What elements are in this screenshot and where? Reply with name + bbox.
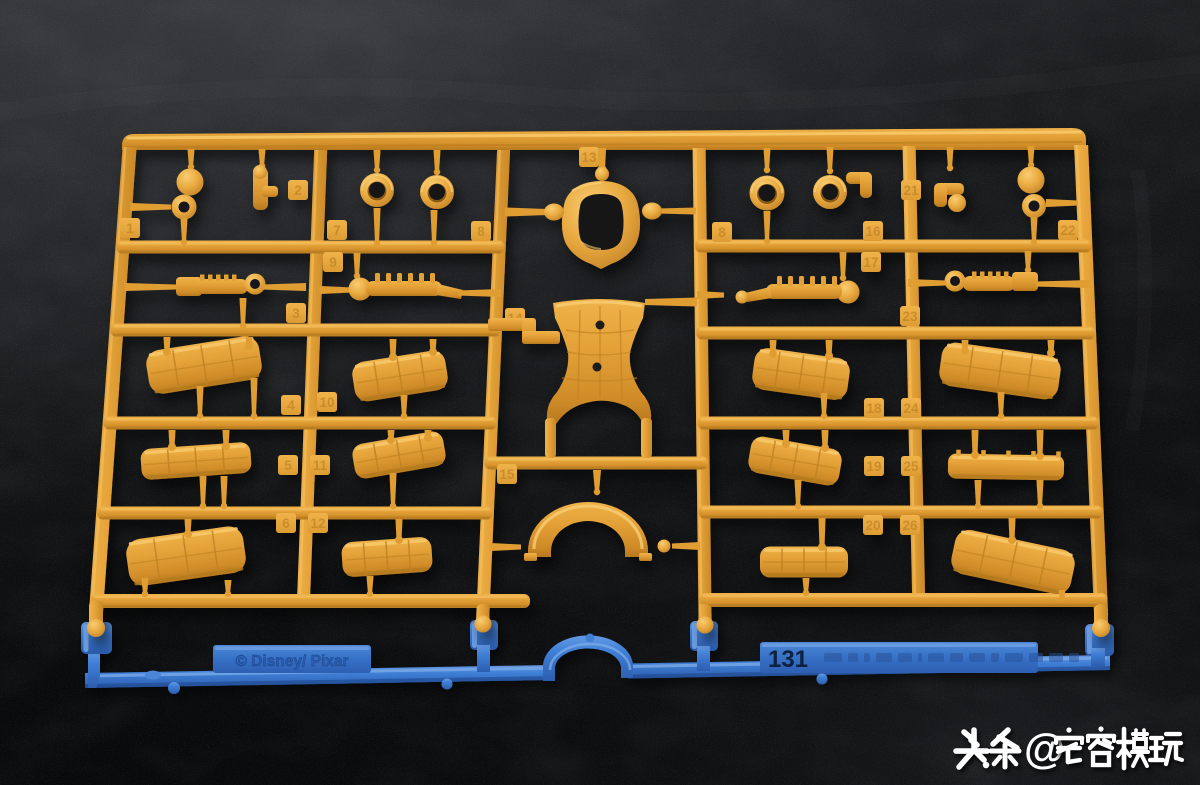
svg-text:6: 6 (282, 516, 290, 531)
svg-text:1: 1 (126, 221, 134, 236)
svg-text:9: 9 (329, 255, 337, 270)
svg-text:8: 8 (477, 224, 485, 239)
svg-text:26: 26 (902, 518, 918, 533)
svg-text:22: 22 (1060, 223, 1075, 238)
svg-text:4: 4 (287, 398, 295, 413)
svg-text:3: 3 (292, 306, 300, 321)
svg-text:131: 131 (768, 646, 808, 673)
svg-text:11: 11 (313, 458, 328, 473)
svg-text:10: 10 (319, 395, 334, 410)
svg-text:12: 12 (310, 516, 325, 531)
svg-text:20: 20 (865, 518, 880, 533)
svg-text:17: 17 (863, 255, 878, 270)
svg-text:19: 19 (866, 459, 881, 474)
svg-text:15: 15 (499, 467, 515, 482)
svg-text:23: 23 (902, 309, 918, 324)
svg-text:© Disney/ Pixar: © Disney/ Pixar (235, 653, 348, 670)
svg-text:25: 25 (903, 459, 919, 474)
svg-text:2: 2 (294, 183, 302, 198)
svg-text:18: 18 (866, 401, 882, 416)
svg-text:21: 21 (903, 183, 919, 198)
svg-text:13: 13 (581, 150, 597, 165)
svg-text:24: 24 (903, 401, 919, 416)
svg-text:16: 16 (865, 224, 881, 239)
svg-text:7: 7 (333, 223, 341, 238)
svg-text:5: 5 (284, 458, 292, 473)
svg-text:8: 8 (718, 225, 726, 240)
